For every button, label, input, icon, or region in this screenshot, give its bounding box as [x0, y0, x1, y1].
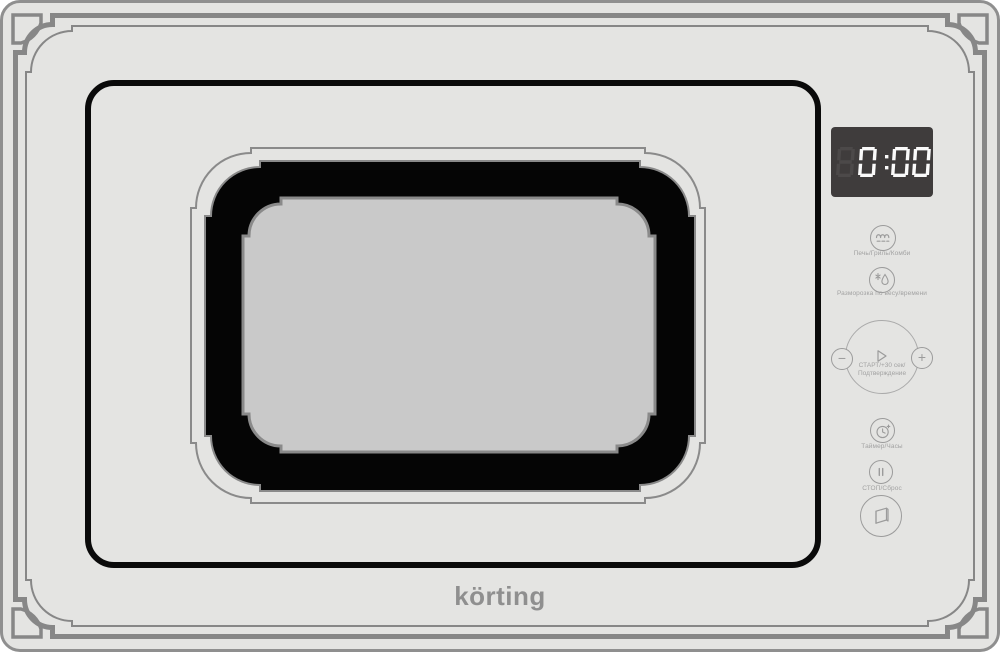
- start-button[interactable]: [876, 349, 888, 363]
- led-display: [831, 127, 933, 197]
- defrost-label: Разморозка по весу/времени: [807, 290, 957, 298]
- play-icon: [876, 349, 888, 363]
- mode-button[interactable]: [870, 225, 896, 251]
- microwave-grill-combi-icon: [873, 228, 893, 248]
- stop-label: СТОП/Сброс: [807, 485, 957, 493]
- timer-label: Таймер/Часы: [807, 443, 957, 451]
- door-open-icon: [869, 504, 893, 528]
- pause-icon: [871, 462, 891, 482]
- timer-clock-icon: [873, 421, 893, 441]
- start-label: СТАРТ/+30 сек/ Подтверждение: [807, 362, 957, 378]
- stop-button[interactable]: [869, 460, 893, 484]
- defrost-weight-time-icon: [872, 270, 892, 290]
- start-label-line2: Подтверждение: [807, 370, 957, 378]
- microwave-front-panel: Печь/Гриль/Комби Разморозка по весу/врем…: [0, 0, 1000, 652]
- start-label-line1: СТАРТ/+30 сек/: [807, 362, 957, 370]
- display-digits: [831, 127, 933, 197]
- door-open-button[interactable]: [860, 495, 902, 537]
- brand-logo: körting: [0, 581, 1000, 612]
- mode-label: Печь/Гриль/Комби: [807, 250, 957, 258]
- timer-button[interactable]: [870, 418, 895, 443]
- appliance-body: [0, 0, 1000, 652]
